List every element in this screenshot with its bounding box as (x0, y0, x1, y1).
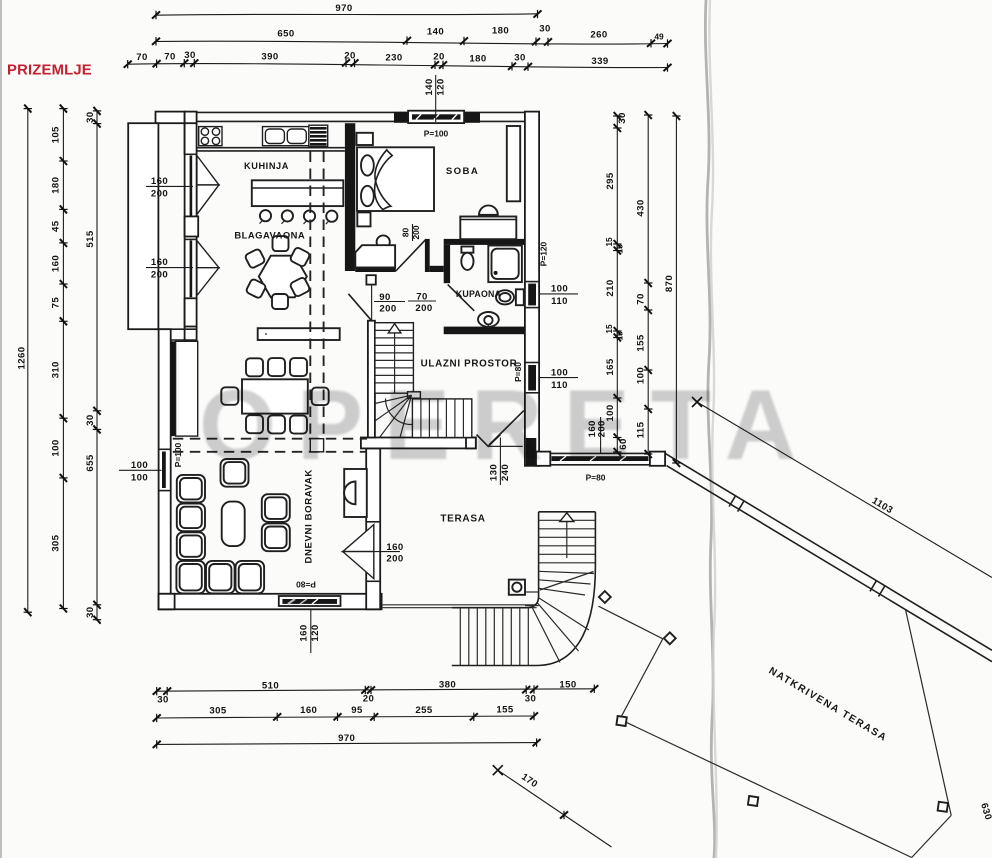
svg-text:110: 110 (551, 296, 568, 307)
svg-text:140: 140 (424, 78, 435, 95)
svg-text:430: 430 (636, 199, 647, 216)
svg-text:970: 970 (338, 733, 355, 744)
svg-text:30: 30 (85, 414, 96, 425)
svg-text:DNEVNI BORAVAK: DNEVNI BORAVAK (303, 469, 314, 563)
svg-text:30: 30 (85, 606, 96, 617)
svg-text:15: 15 (615, 244, 625, 254)
svg-text:255: 255 (415, 705, 432, 716)
svg-text:ULAZNI PROSTOR: ULAZNI PROSTOR (421, 359, 518, 370)
svg-text:650: 650 (277, 29, 294, 40)
svg-text:160: 160 (300, 705, 317, 716)
svg-text:230: 230 (385, 53, 402, 64)
svg-text:80: 80 (401, 228, 411, 238)
svg-text:150: 150 (559, 680, 576, 691)
svg-text:510: 510 (262, 681, 279, 692)
svg-text:15: 15 (615, 331, 625, 341)
svg-text:160: 160 (151, 176, 168, 187)
svg-text:120: 120 (310, 624, 321, 641)
svg-text:160: 160 (299, 624, 310, 641)
svg-text:OPERETA: OPERETA (199, 369, 817, 480)
svg-text:45: 45 (51, 220, 62, 232)
svg-text:180: 180 (469, 54, 486, 65)
svg-text:180: 180 (51, 177, 62, 194)
svg-text:30: 30 (617, 112, 628, 123)
svg-text:655: 655 (85, 454, 96, 471)
svg-text:20: 20 (433, 52, 444, 63)
svg-text:20: 20 (363, 694, 374, 705)
svg-text:100: 100 (131, 473, 148, 484)
svg-text:140: 140 (427, 27, 444, 38)
svg-text:380: 380 (439, 680, 456, 691)
svg-text:15: 15 (604, 324, 614, 334)
svg-text:SOBA: SOBA (446, 166, 479, 177)
svg-text:100: 100 (131, 460, 148, 471)
svg-text:70: 70 (164, 52, 175, 63)
svg-text:70: 70 (136, 52, 147, 63)
svg-text:100: 100 (51, 439, 62, 456)
svg-text:390: 390 (261, 52, 278, 63)
svg-text:P=120: P=120 (539, 241, 549, 266)
svg-text:310: 310 (51, 361, 62, 378)
svg-text:155: 155 (636, 334, 647, 351)
svg-text:95: 95 (351, 705, 363, 716)
svg-text:49: 49 (654, 32, 664, 42)
svg-text:180: 180 (492, 26, 509, 37)
svg-text:70: 70 (636, 293, 647, 304)
svg-text:P=100: P=100 (424, 129, 449, 139)
svg-text:260: 260 (590, 30, 607, 41)
svg-text:120: 120 (436, 78, 447, 95)
svg-text:30: 30 (157, 695, 168, 706)
svg-text:100: 100 (551, 284, 568, 295)
svg-text:155: 155 (496, 705, 513, 716)
svg-text:160: 160 (151, 257, 168, 268)
svg-text:870: 870 (664, 275, 675, 292)
svg-text:30: 30 (539, 24, 550, 35)
svg-text:295: 295 (605, 172, 616, 189)
svg-text:970: 970 (335, 3, 352, 14)
svg-text:515: 515 (85, 230, 96, 247)
svg-text:160: 160 (51, 255, 62, 272)
svg-text:P=80: P=80 (296, 580, 316, 590)
svg-text:75: 75 (51, 297, 62, 309)
svg-text:30: 30 (184, 50, 195, 61)
svg-text:200: 200 (415, 303, 432, 314)
svg-text:1260: 1260 (17, 347, 28, 370)
svg-text:30: 30 (85, 111, 96, 122)
svg-text:P=100: P=100 (173, 442, 183, 467)
svg-text:KUPAONA: KUPAONA (456, 289, 502, 299)
svg-text:30: 30 (525, 694, 536, 705)
svg-text:30: 30 (514, 53, 525, 64)
svg-text:KUHINJA: KUHINJA (244, 161, 289, 171)
svg-text:160: 160 (386, 542, 403, 553)
svg-text:15: 15 (604, 237, 614, 247)
svg-text:PRIZEMLJE: PRIZEMLJE (7, 63, 92, 79)
svg-text:305: 305 (51, 534, 62, 551)
svg-text:90: 90 (379, 292, 390, 303)
svg-text:200: 200 (151, 270, 168, 281)
svg-text:BLAGAVAONA: BLAGAVAONA (234, 230, 305, 241)
svg-text:105: 105 (51, 126, 62, 143)
svg-text:305: 305 (209, 706, 226, 717)
svg-text:200: 200 (386, 553, 403, 564)
svg-text:200: 200 (151, 189, 168, 200)
svg-text:70: 70 (416, 291, 427, 302)
svg-text:339: 339 (591, 56, 608, 67)
svg-text:TERASA: TERASA (440, 514, 485, 525)
svg-text:200: 200 (379, 303, 396, 314)
svg-text:210: 210 (605, 279, 616, 296)
svg-text:200: 200 (411, 225, 421, 239)
svg-text:20: 20 (344, 51, 355, 62)
